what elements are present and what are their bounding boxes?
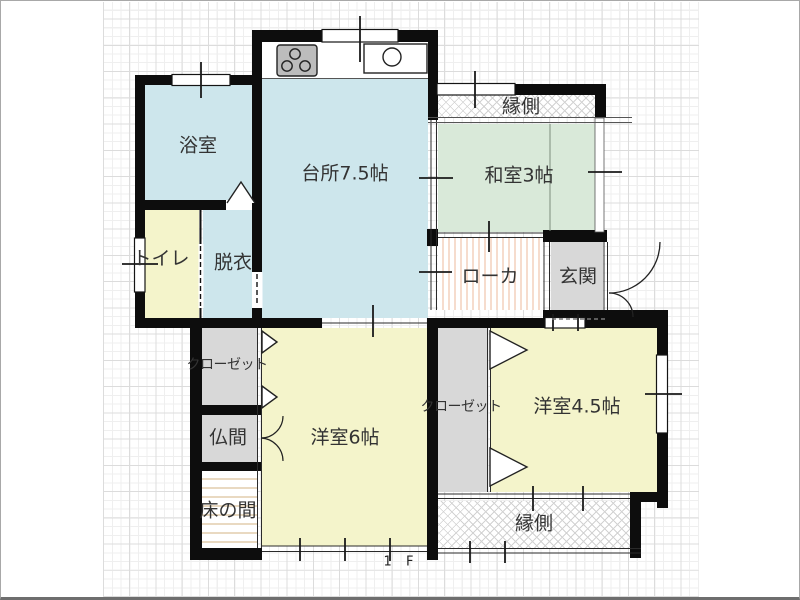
label-toilet: トイレ <box>132 250 189 269</box>
wall <box>190 462 262 471</box>
label-dressing: 脱衣 <box>214 254 252 273</box>
wall <box>630 492 641 558</box>
wall <box>438 318 668 328</box>
wall <box>135 318 322 328</box>
label-entrance: 玄関 <box>559 268 597 287</box>
kitchen-counter <box>262 42 428 79</box>
label-closet-center: クローゼット <box>421 400 502 414</box>
label-hallway: ローカ <box>461 268 518 287</box>
wall <box>427 229 438 246</box>
wall <box>595 84 606 118</box>
label-veranda-top: 縁側 <box>502 98 540 117</box>
label-bathroom: 浴室 <box>179 137 217 156</box>
floorplan: 浴室 トイレ 脱衣 台所7.5帖 縁側 和室3帖 ローカ 玄関 クローゼット 仏… <box>0 0 800 600</box>
wall <box>252 30 438 42</box>
wall <box>190 548 262 560</box>
wall <box>135 75 262 85</box>
wall <box>543 230 607 242</box>
label-veranda-bottom: 縁側 <box>515 515 553 534</box>
wall <box>657 318 668 508</box>
label-kitchen: 台所7.5帖 <box>301 165 388 184</box>
wall <box>252 30 262 328</box>
label-washitsu: 和室3帖 <box>484 167 553 186</box>
wall <box>428 84 606 95</box>
label-closet-left: クローゼット <box>187 358 268 372</box>
label-youshitsu45: 洋室4.5帖 <box>533 398 620 417</box>
wall <box>190 318 202 560</box>
label-floor: 1 F <box>384 556 419 569</box>
label-tokonoma: 床の間 <box>199 502 256 521</box>
wall <box>427 318 438 560</box>
label-butsuma: 仏間 <box>209 429 247 448</box>
wall <box>190 405 262 415</box>
label-youshitsu6: 洋室6帖 <box>310 429 379 448</box>
wall <box>428 30 438 120</box>
